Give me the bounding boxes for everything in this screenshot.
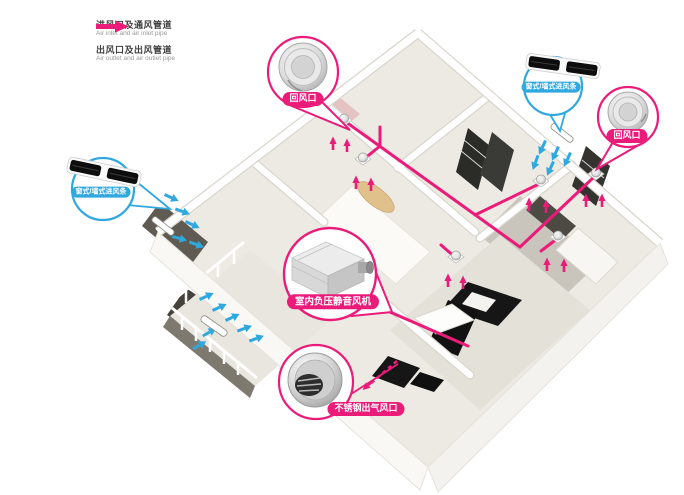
round-return-vent-icon — [279, 43, 327, 91]
legend-outlet-label-en: Air outlet and air outlet pipe — [96, 55, 175, 63]
legend-outlet-label-cn: 出风口及出风管道 — [96, 45, 175, 55]
badge-stainless-outlet: 不锈钢出气风口 — [327, 402, 404, 416]
legend: 进风口及通风管道 Air inlet and air inlet pipe 出风… — [96, 20, 175, 63]
badge-return-air-top: 回风口 — [282, 92, 323, 106]
badge-window-inlet-right: 窗式/墙式进风条 — [522, 82, 581, 93]
badge-return-air-right: 回风口 — [606, 129, 647, 143]
legend-item-outlet: 出风口及出风管道 Air outlet and air outlet pipe — [96, 45, 175, 63]
house-illustration — [0, 0, 684, 495]
ventilation-diagram: 进风口及通风管道 Air inlet and air inlet pipe 出风… — [0, 0, 684, 495]
badge-window-inlet-left: 窗式/墙式进风条 — [72, 187, 131, 198]
callout-return-air-right — [597, 87, 658, 169]
badge-indoor-fan: 室内负压静音风机 — [287, 294, 379, 309]
outlet-arrow-icon — [96, 20, 132, 33]
stainless-outlet-vent-icon — [288, 353, 342, 407]
round-return-vent-icon — [608, 92, 648, 132]
